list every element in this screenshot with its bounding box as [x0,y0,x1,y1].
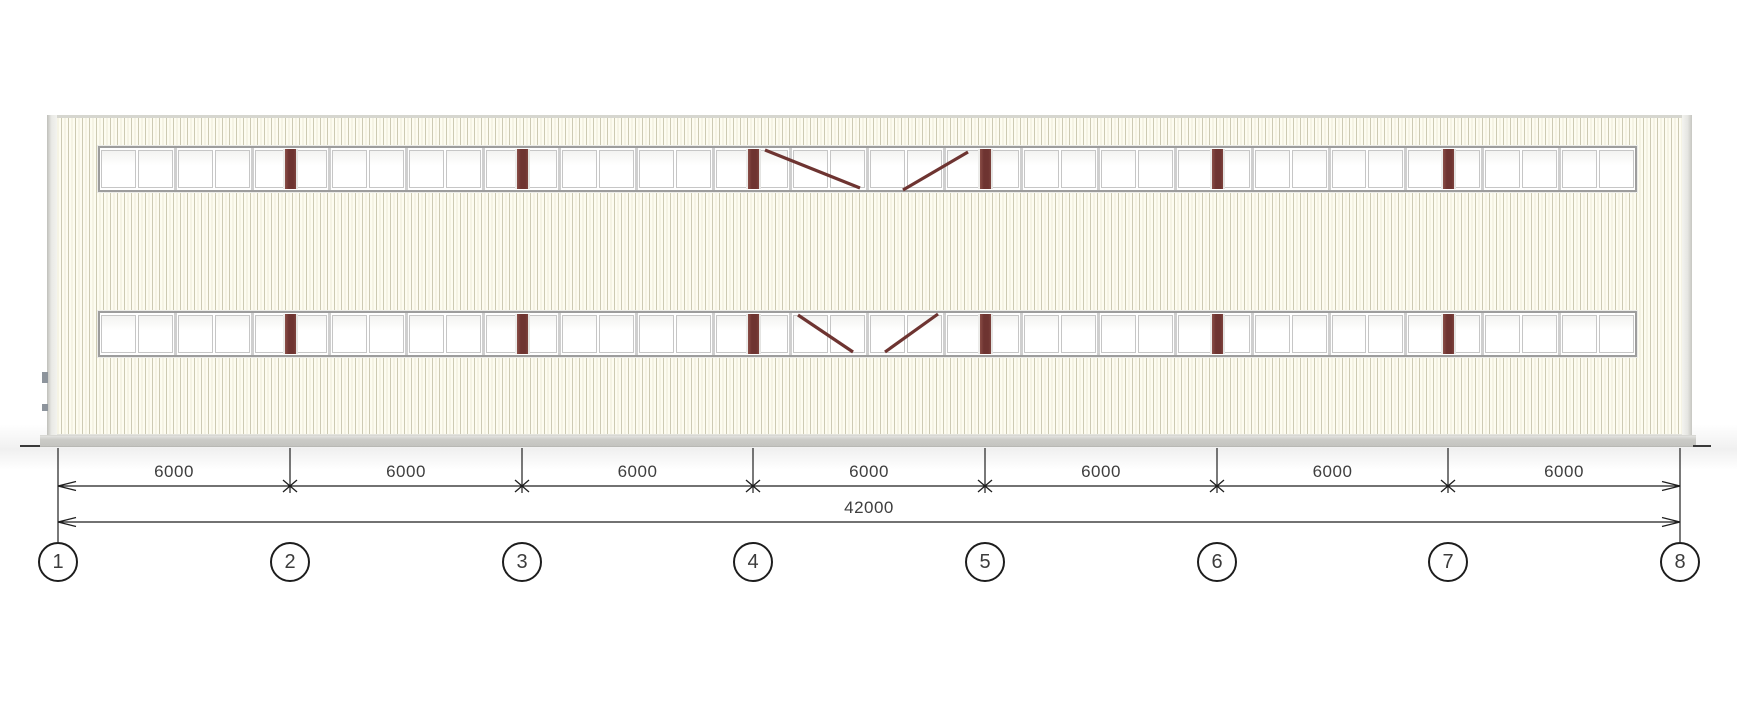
arrowhead [58,518,76,523]
arrowhead [58,486,76,491]
bay-dimension-label: 6000 [356,462,456,482]
arrowhead [1662,486,1680,491]
grid-bubble-label: 7 [1442,551,1453,574]
total-dimension-label: 42000 [819,498,919,518]
arrowhead [58,522,76,527]
bay-dimension-label: 6000 [819,462,919,482]
grid-bubble: 3 [502,542,542,582]
grid-bubble-label: 4 [747,551,758,574]
dimension-graphics [0,0,1737,720]
arrowhead [1662,482,1680,487]
bay-dimension-label: 6000 [1283,462,1383,482]
bay-dimension-label: 6000 [124,462,224,482]
grid-bubble-label: 8 [1674,551,1685,574]
grid-bubble-label: 6 [1211,551,1222,574]
grid-bubble: 7 [1428,542,1468,582]
arrowhead [1662,522,1680,527]
arrowhead [58,482,76,487]
grid-bubble-label: 1 [52,551,63,574]
grid-bubble-label: 2 [284,551,295,574]
grid-bubble: 5 [965,542,1005,582]
bay-dimension-label: 6000 [1514,462,1614,482]
bay-dimension-label: 6000 [1051,462,1151,482]
grid-bubble: 4 [733,542,773,582]
grid-bubble-label: 3 [516,551,527,574]
grid-bubble: 2 [270,542,310,582]
grid-bubble: 8 [1660,542,1700,582]
bay-dimension-label: 6000 [588,462,688,482]
elevation-drawing: 6000600060006000600060006000 42000 12345… [0,0,1737,720]
grid-bubble-label: 5 [979,551,990,574]
arrowhead [1662,518,1680,523]
grid-bubble: 6 [1197,542,1237,582]
grid-bubble: 1 [38,542,78,582]
